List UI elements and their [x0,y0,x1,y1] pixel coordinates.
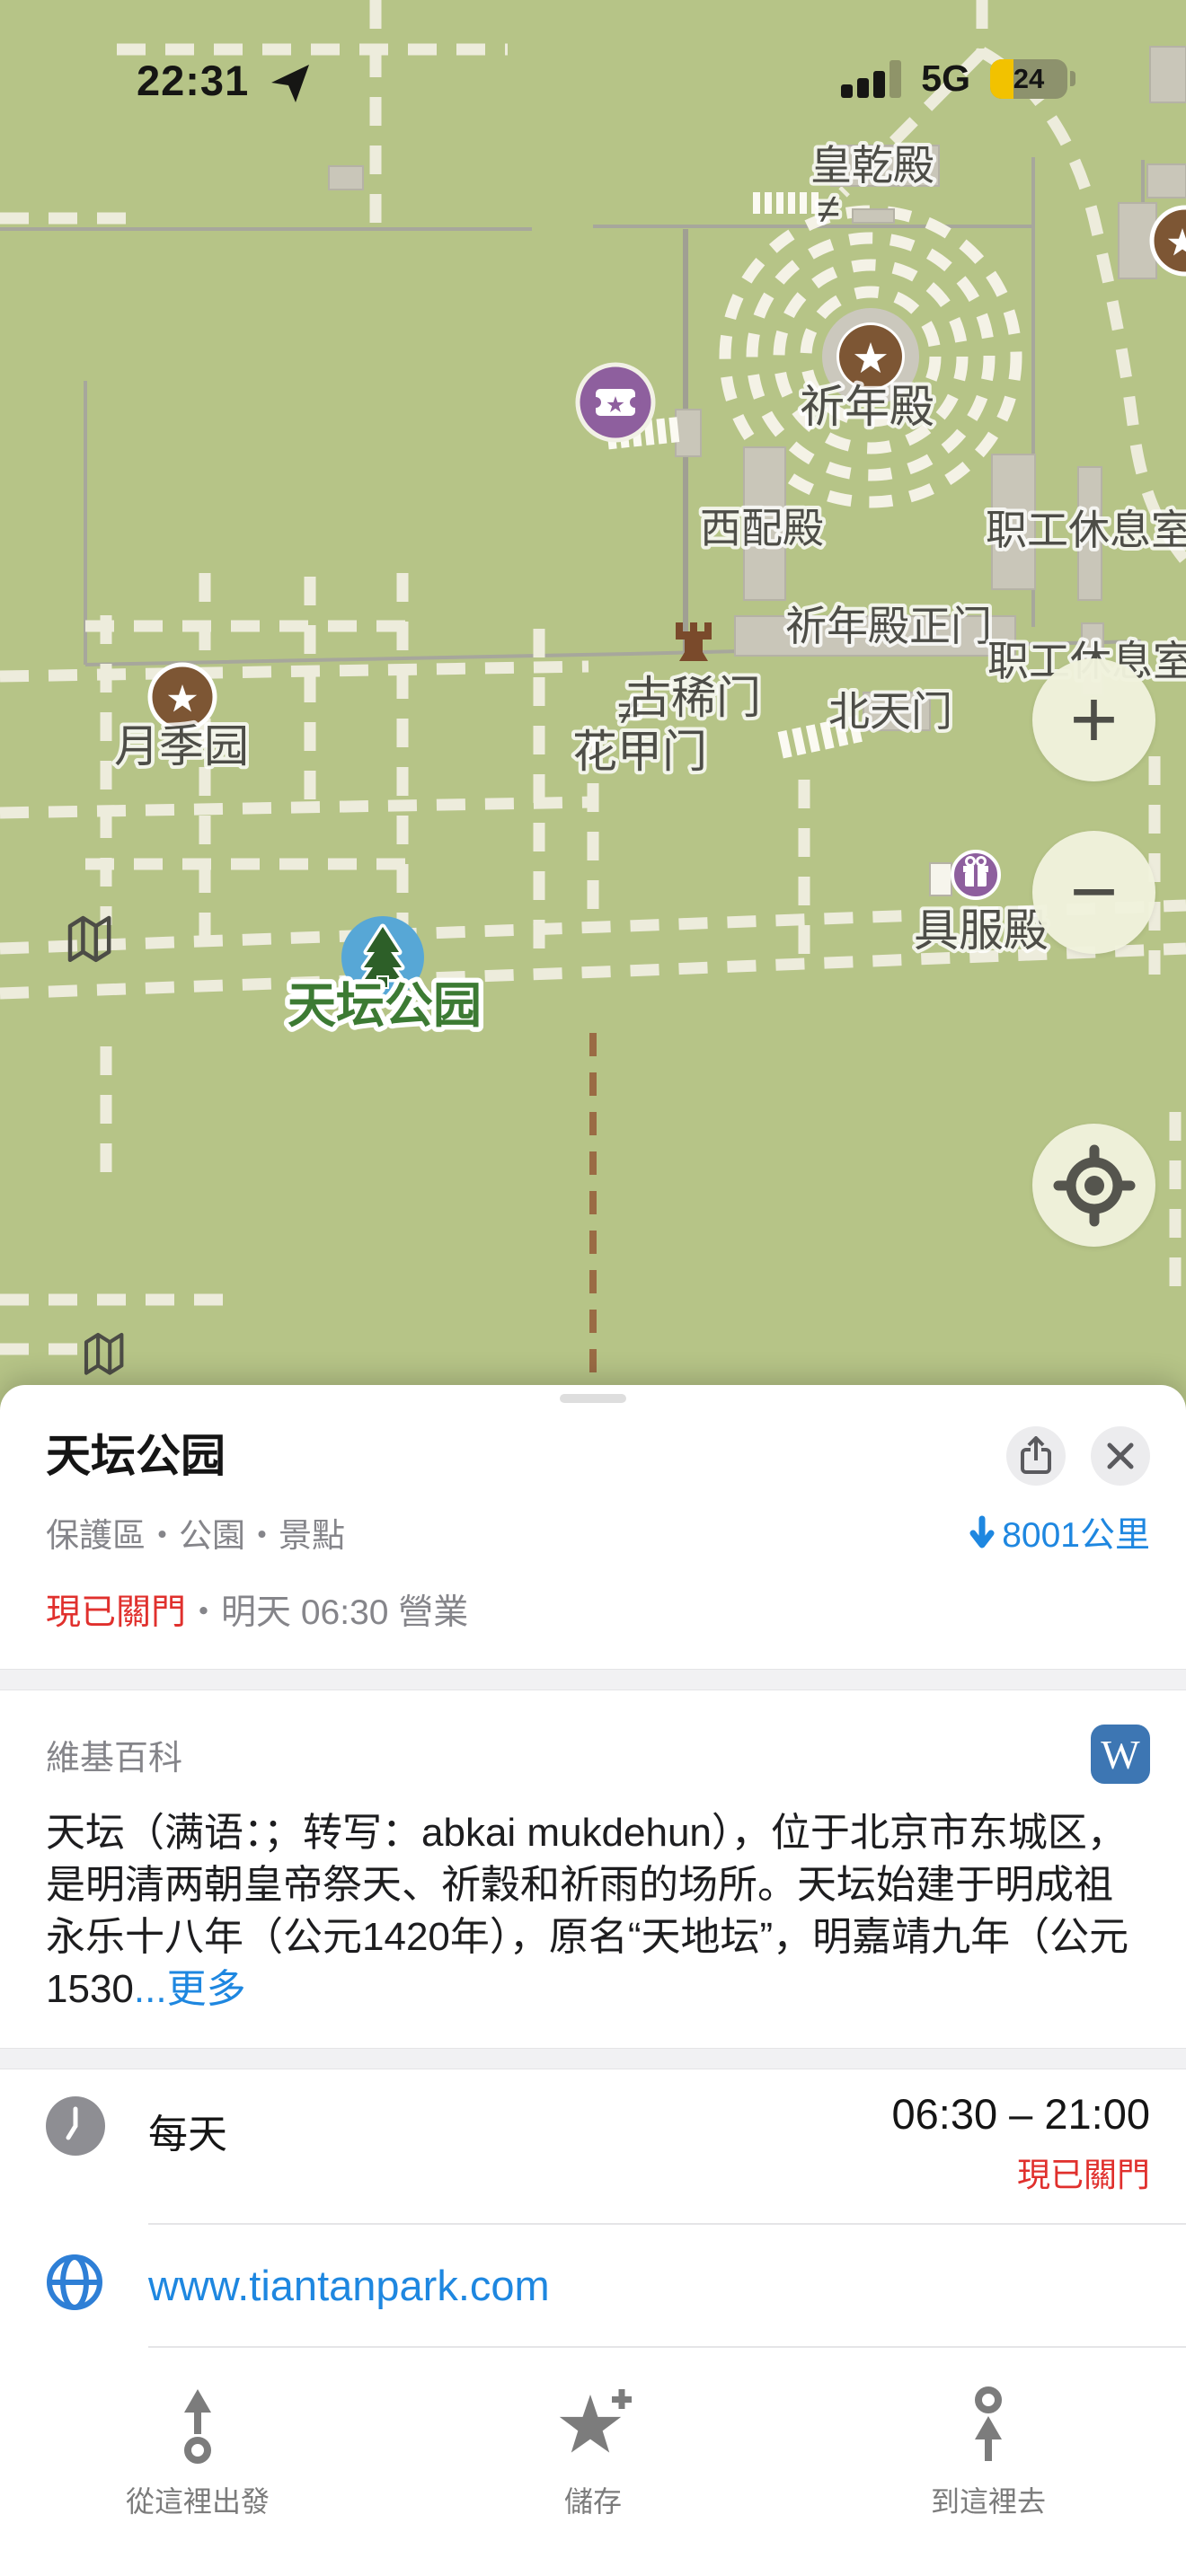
wikipedia-icon[interactable]: W [1091,1725,1150,1784]
distance-badge: 8001公里 [969,1507,1150,1557]
wikipedia-excerpt: 天坛（满语：；转写：abkai mukdehun），位于北京市东城区，是明清两朝… [46,1807,1150,2016]
distance-value: 8001公里 [1002,1507,1150,1557]
toolbar-label: 到這裡去 [931,2479,1046,2520]
crosshair-icon [1051,1142,1137,1229]
locate-me-button[interactable] [1032,1124,1155,1247]
wikipedia-section: 維基百科 W 天坛（满语：；转写：abkai mukdehun），位于北京市东城… [0,1690,1186,2048]
info-list: 每天 06:30 – 21:00 現已關門 www.tiantanpark.co… [0,2069,1186,2348]
zoom-in-button[interactable]: + [1032,658,1155,781]
label-park: 天坛公园 [288,979,482,1033]
toolbar-label: 從這裡出發 [126,2479,270,2520]
globe-icon [46,2254,103,2311]
save-button[interactable]: 儲存 [395,2386,791,2520]
share-button[interactable] [1006,1426,1066,1486]
label-qiniandian-gate: 祈年殿正门 [785,603,992,649]
label-huangqiandian: 皇乾殿 [810,142,934,189]
label-qiniandian: 祈年殿 [800,382,934,432]
label-zhigong-1: 职工休息室 [986,507,1186,553]
close-icon [1106,1442,1135,1470]
website-row[interactable]: www.tiantanpark.com [46,2223,1186,2348]
plus-icon: + [1070,673,1119,767]
close-button[interactable] [1091,1426,1150,1486]
map-canvas[interactable]: ≠ ≠ 皇乾殿 祈年殿 西配殿 职工休息室 祈年殿正门 职工休息室 古稀门 北天… [0,0,1186,1437]
hours-row[interactable]: 每天 06:30 – 21:00 現已關門 [46,2069,1186,2223]
section-separator [0,1669,1186,1690]
star-plus-icon [553,2386,633,2466]
directions-to-here-button[interactable]: 到這裡去 [791,2386,1186,2520]
more-link[interactable]: ...更多 [134,1967,246,2011]
battery-icon: 24 [990,59,1067,99]
hours-time: 06:30 – 21:00 [892,2089,1151,2139]
poi-ticket-icon[interactable] [578,365,653,440]
zoom-out-button[interactable]: − [1032,831,1155,954]
hours-status: 現已關門 [892,2148,1151,2196]
signal-strength-icon [841,58,901,100]
share-icon [1018,1436,1054,1476]
website-link[interactable]: www.tiantanpark.com [148,2262,550,2309]
section-separator [0,2048,1186,2069]
location-arrow-icon [270,63,313,104]
poi-yuejiyuan-icon[interactable] [150,665,215,729]
battery-percent: 24 [990,59,1067,99]
label-huajiamen: 花甲门 [572,727,707,777]
depart-arrow-icon [157,2386,238,2466]
toolbar-label: 儲存 [564,2479,622,2520]
label-guximen: 古稀门 [626,673,761,723]
open-status-line: 現已關門・明天 06:30 營業 [46,1584,1150,1635]
directions-from-here-button[interactable]: 從這裡出發 [0,2386,395,2520]
opens-info: 明天 06:30 營業 [221,1593,468,1632]
hours-label: 每天 [148,2089,227,2196]
clock-time: 22:31 [137,56,249,105]
page-title: 天坛公园 [46,1426,226,1486]
label-beitianmen: 北天门 [828,688,952,735]
label-xipeidian: 西配殿 [700,505,824,551]
closed-status: 現已關門 [46,1593,186,1632]
distance-arrow-icon [969,1515,995,1549]
network-type: 5G [921,57,970,100]
wikipedia-letter: W [1101,1731,1139,1778]
wikipedia-header: 維基百科 [46,1730,182,1779]
poi-gift-icon[interactable] [952,851,999,898]
place-card-header: 天坛公园 保護區・公園・景點 [0,1385,1186,1669]
action-toolbar: 從這裡出發 儲存 到這裡去 [0,2386,1186,2520]
minus-icon: − [1070,845,1119,940]
gate-marker: ≠ [817,185,839,232]
place-card: 天坛公园 保護區・公園・景點 [0,1385,1186,2576]
label-jufudian: 具服殿 [914,905,1049,956]
status-bar: 22:31 5G 24 [0,56,1186,113]
drag-handle[interactable] [560,1394,626,1403]
place-category: 保護區・公園・景點 [46,1508,345,1557]
clock-icon [46,2096,105,2156]
label-yuejiyuan: 月季园 [114,721,249,772]
dot-separator: ・ [186,1593,221,1632]
goto-arrow-icon [948,2386,1029,2466]
